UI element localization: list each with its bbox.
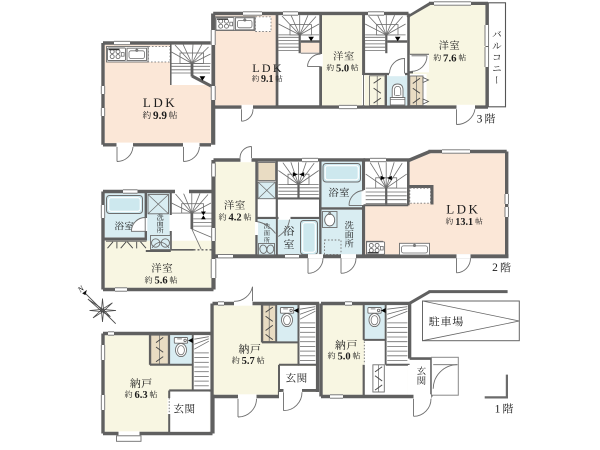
svg-text:5.0: 5.0	[337, 351, 350, 362]
svg-text:LDK: LDK	[252, 61, 284, 75]
svg-text:LDK: LDK	[143, 95, 177, 110]
svg-text:5.0: 5.0	[336, 63, 349, 74]
svg-text:5.6: 5.6	[154, 276, 167, 287]
svg-text:6.3: 6.3	[134, 390, 147, 401]
svg-text:9.1: 9.1	[261, 74, 274, 85]
svg-text:5.7: 5.7	[242, 356, 255, 367]
svg-text:9.9: 9.9	[153, 110, 167, 122]
svg-text:7.6: 7.6	[443, 52, 457, 64]
svg-text:4.2: 4.2	[228, 213, 241, 224]
svg-text:3: 3	[477, 113, 483, 125]
svg-text:LDK: LDK	[446, 202, 480, 217]
svg-text:1: 1	[495, 403, 501, 415]
svg-text:2: 2	[492, 262, 498, 274]
svg-text:13.1: 13.1	[455, 217, 473, 228]
